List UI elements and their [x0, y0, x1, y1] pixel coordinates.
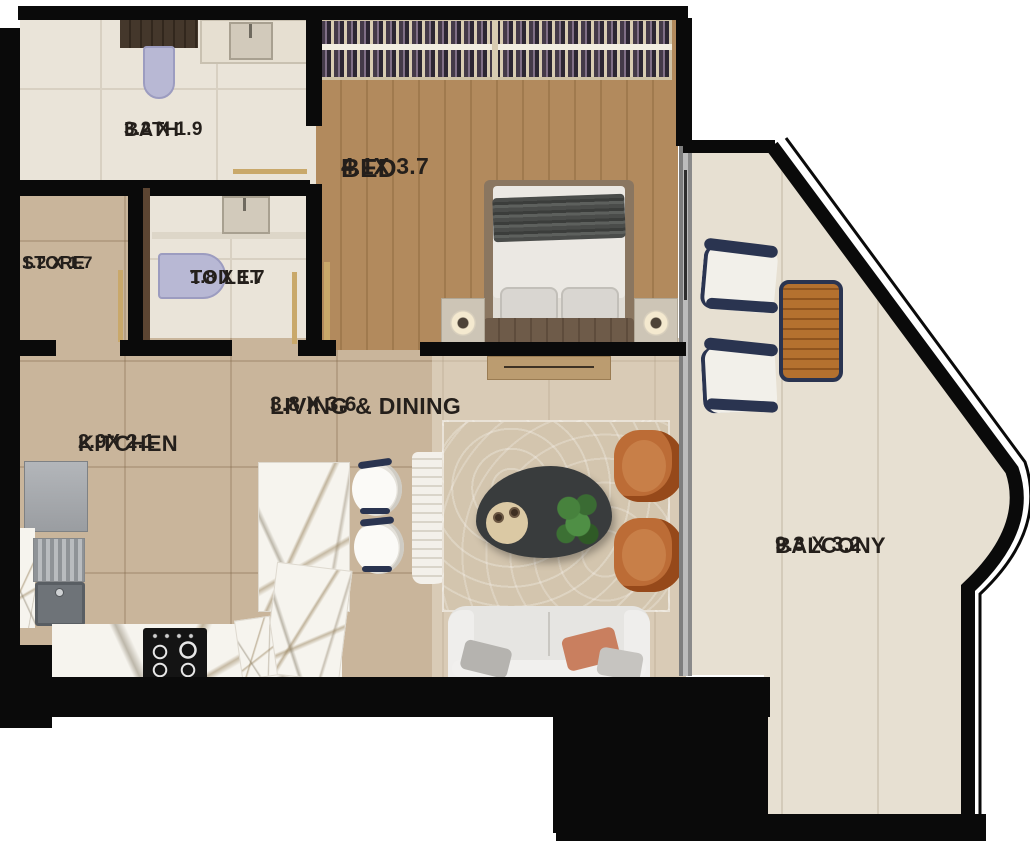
armchair-1-seat: [622, 440, 666, 492]
sofa-seat-split: [548, 612, 550, 656]
floor-plan: BATH 3.2 X 1.9 BED 4.1X 3.7 STORE 1.2 X …: [0, 0, 1030, 841]
wardrobe-divider: [492, 18, 498, 80]
outdoor-table: [779, 280, 843, 382]
bath-faucet-icon: [249, 24, 252, 38]
sink-drainer: [33, 538, 85, 582]
marble-counter-lower: [263, 562, 352, 682]
wall-bedroom-south: [420, 342, 686, 356]
serving-tray: [486, 502, 528, 544]
wall-balcony-top: [683, 140, 775, 153]
wall-left: [0, 28, 20, 648]
bedside-lamp-left-icon: [450, 310, 476, 336]
toilet-faucet-icon: [243, 198, 246, 211]
wall-south-toilet: [298, 340, 336, 356]
label-store-dims: 1.2 X 1.7: [22, 252, 93, 273]
wall-bath-east-upper: [306, 18, 322, 126]
wall-south-store-b: [120, 340, 232, 356]
wall-south-store-a: [18, 340, 56, 356]
bar-stool-1-seatbar: [360, 508, 390, 514]
bath-cabinet: [120, 20, 198, 48]
toilet-basin: [222, 196, 270, 234]
store-door-leaf: [118, 270, 123, 342]
tv-console-handle: [504, 366, 594, 368]
label-bath-dims: 3.2 X 1.9: [124, 118, 203, 142]
bath-door-leaf: [233, 169, 307, 174]
label-living-dims: 3.8 X 3.6: [270, 392, 357, 418]
wall-bedroom-east: [676, 18, 692, 146]
potted-plant: [554, 492, 600, 550]
tv-console: [487, 356, 611, 380]
bar-stool-2-seatbar: [362, 566, 392, 572]
kitchen-faucet-icon: [55, 588, 64, 597]
bedside-lamp-right-icon: [643, 310, 669, 336]
label-balcony-dims: 9.3 X 3.2: [775, 532, 862, 558]
label-toilet-dims: 1.8 X 1.7: [190, 266, 265, 289]
toilet-door-leaf: [292, 272, 297, 344]
tray-cup-2: [509, 507, 520, 518]
bed-throw-blanket: [492, 194, 625, 243]
wall-balcony-south: [556, 814, 986, 841]
store-toilet-door-panel: [143, 188, 150, 344]
refrigerator: [24, 461, 88, 532]
wall-bath-east-lower: [306, 184, 322, 356]
tray-cup-1: [493, 512, 504, 523]
bath-toilet: [143, 46, 175, 99]
bedroom-door-leaf: [324, 262, 330, 344]
wall-living-south: [48, 677, 770, 717]
wall-bath-bottom: [18, 180, 310, 196]
label-kitchen-dims: 2.9X 2.1: [78, 430, 155, 455]
gas-hob-burners: [143, 628, 207, 680]
label-bed-dims: 4.1X 3.7: [341, 152, 429, 181]
armchair-2-seat: [622, 529, 666, 581]
wall-top: [18, 6, 688, 20]
glass-door-handle: [684, 170, 687, 300]
wall-bottom-left-block: [0, 645, 52, 728]
